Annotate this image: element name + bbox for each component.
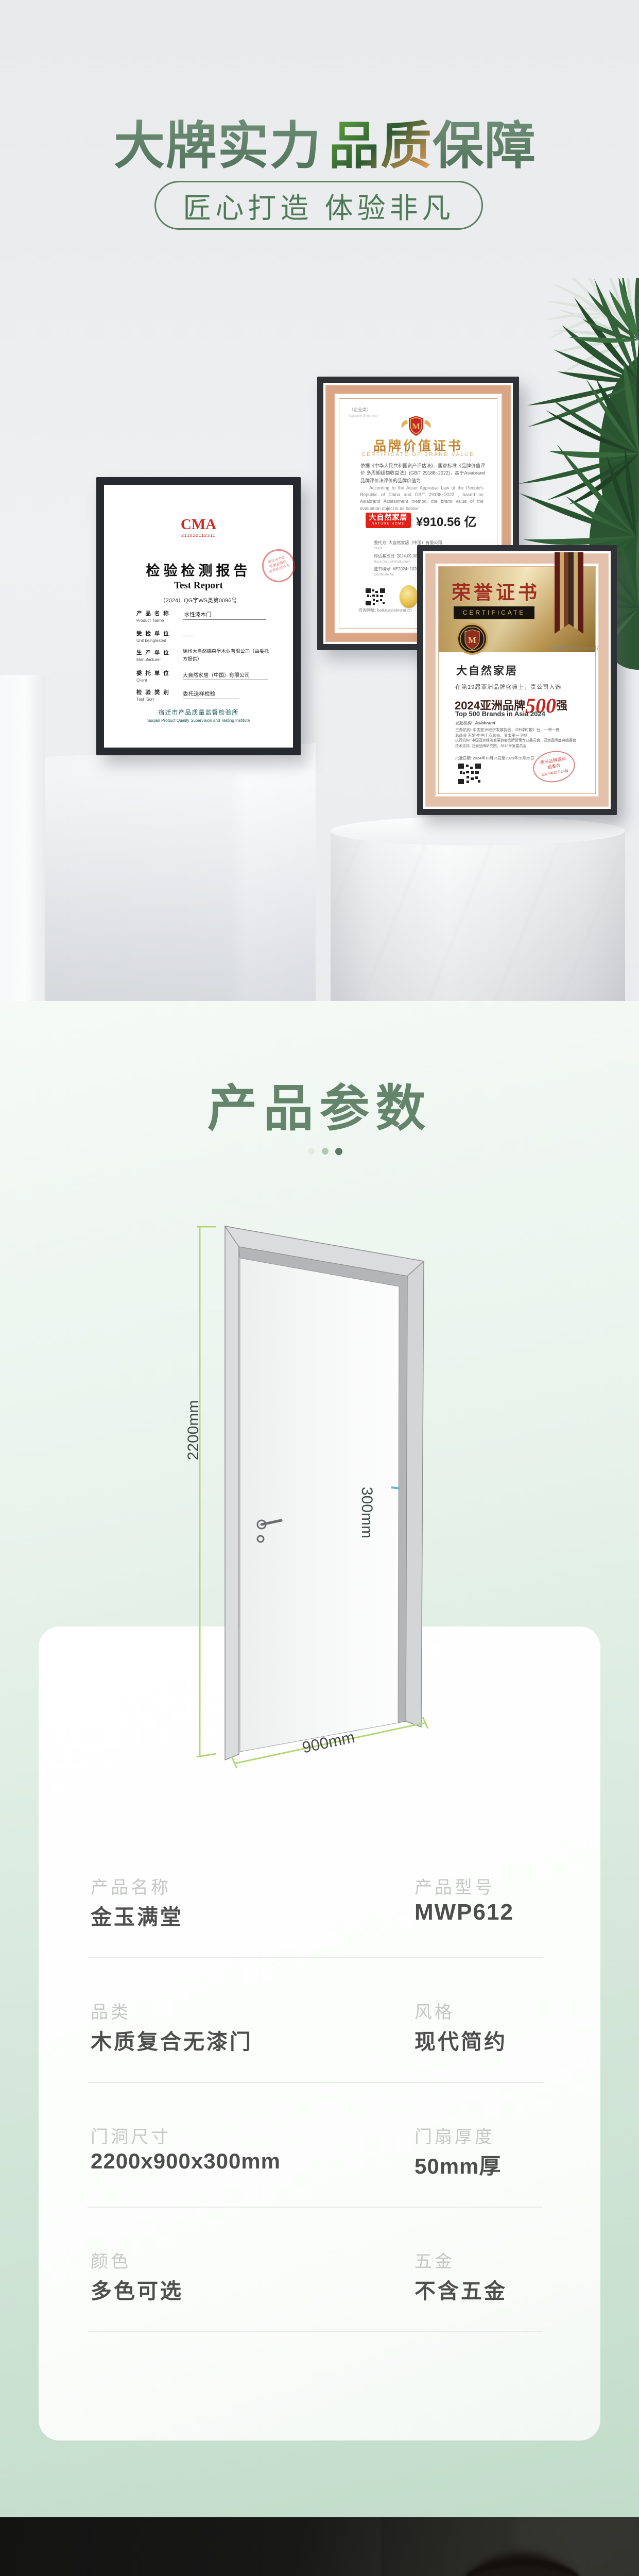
svg-text:M: M [412, 421, 420, 431]
svg-text:300mm: 300mm [358, 1487, 375, 1538]
svg-text:M: M [468, 635, 476, 645]
svg-text:2200mm: 2200mm [185, 1400, 202, 1461]
